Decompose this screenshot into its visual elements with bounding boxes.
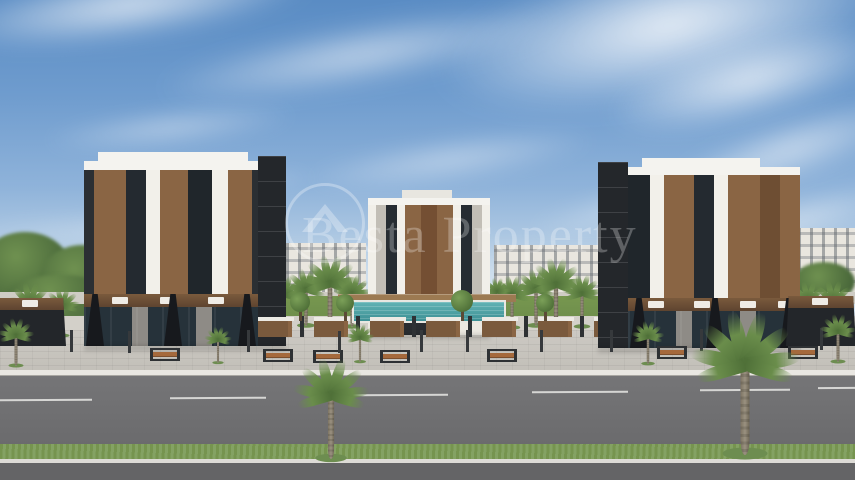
charcoal-wing <box>598 162 628 348</box>
lamp-post <box>128 331 131 353</box>
lamp-post <box>700 329 703 351</box>
lamp-post <box>70 330 73 352</box>
shop-sign-placard <box>208 297 224 304</box>
lamp-post <box>540 330 543 352</box>
road-asphalt <box>0 376 855 444</box>
lamp-post <box>466 330 469 352</box>
palm-trunk <box>328 392 334 459</box>
swing-bench <box>263 349 293 362</box>
lamp-post <box>420 330 423 352</box>
building-shadow <box>84 345 286 351</box>
shop-sign-placard <box>648 301 664 308</box>
shop-sign-placard <box>22 300 38 307</box>
shop-sign-placard <box>740 301 756 308</box>
lamp-post <box>338 331 341 353</box>
planter-wall-row <box>258 320 598 337</box>
roof-slab <box>84 161 258 170</box>
tree-canopy <box>290 292 310 312</box>
roof-slab <box>98 152 248 161</box>
near-road-asphalt <box>0 463 855 480</box>
roof-slab <box>642 158 760 167</box>
roof-penthouse <box>402 190 452 198</box>
apartment-block-right <box>598 158 800 348</box>
swing-bench <box>150 348 180 361</box>
swing-bench <box>657 346 687 359</box>
scene: Besta Property <box>0 0 855 480</box>
residential-floors <box>628 175 800 298</box>
roof-slab <box>368 198 490 205</box>
swing-bench <box>487 349 517 362</box>
swing-bench <box>380 350 410 363</box>
residential-floors <box>84 170 258 294</box>
tree-canopy <box>451 290 473 312</box>
residential-floors <box>368 205 490 307</box>
lamp-post <box>247 330 250 352</box>
tree-canopy <box>536 294 554 312</box>
shop-sign-placard <box>694 301 710 308</box>
roof-slab <box>628 167 800 175</box>
lamp-post <box>610 330 613 352</box>
shop-sign-placard <box>812 298 828 305</box>
lamp-post <box>820 328 823 350</box>
bollard-row <box>258 316 598 337</box>
tree-canopy <box>336 294 354 312</box>
palm-trunk <box>741 359 750 455</box>
lane-marking <box>818 387 855 389</box>
apartment-block-left <box>84 152 286 346</box>
shop-sign-placard <box>112 297 128 304</box>
